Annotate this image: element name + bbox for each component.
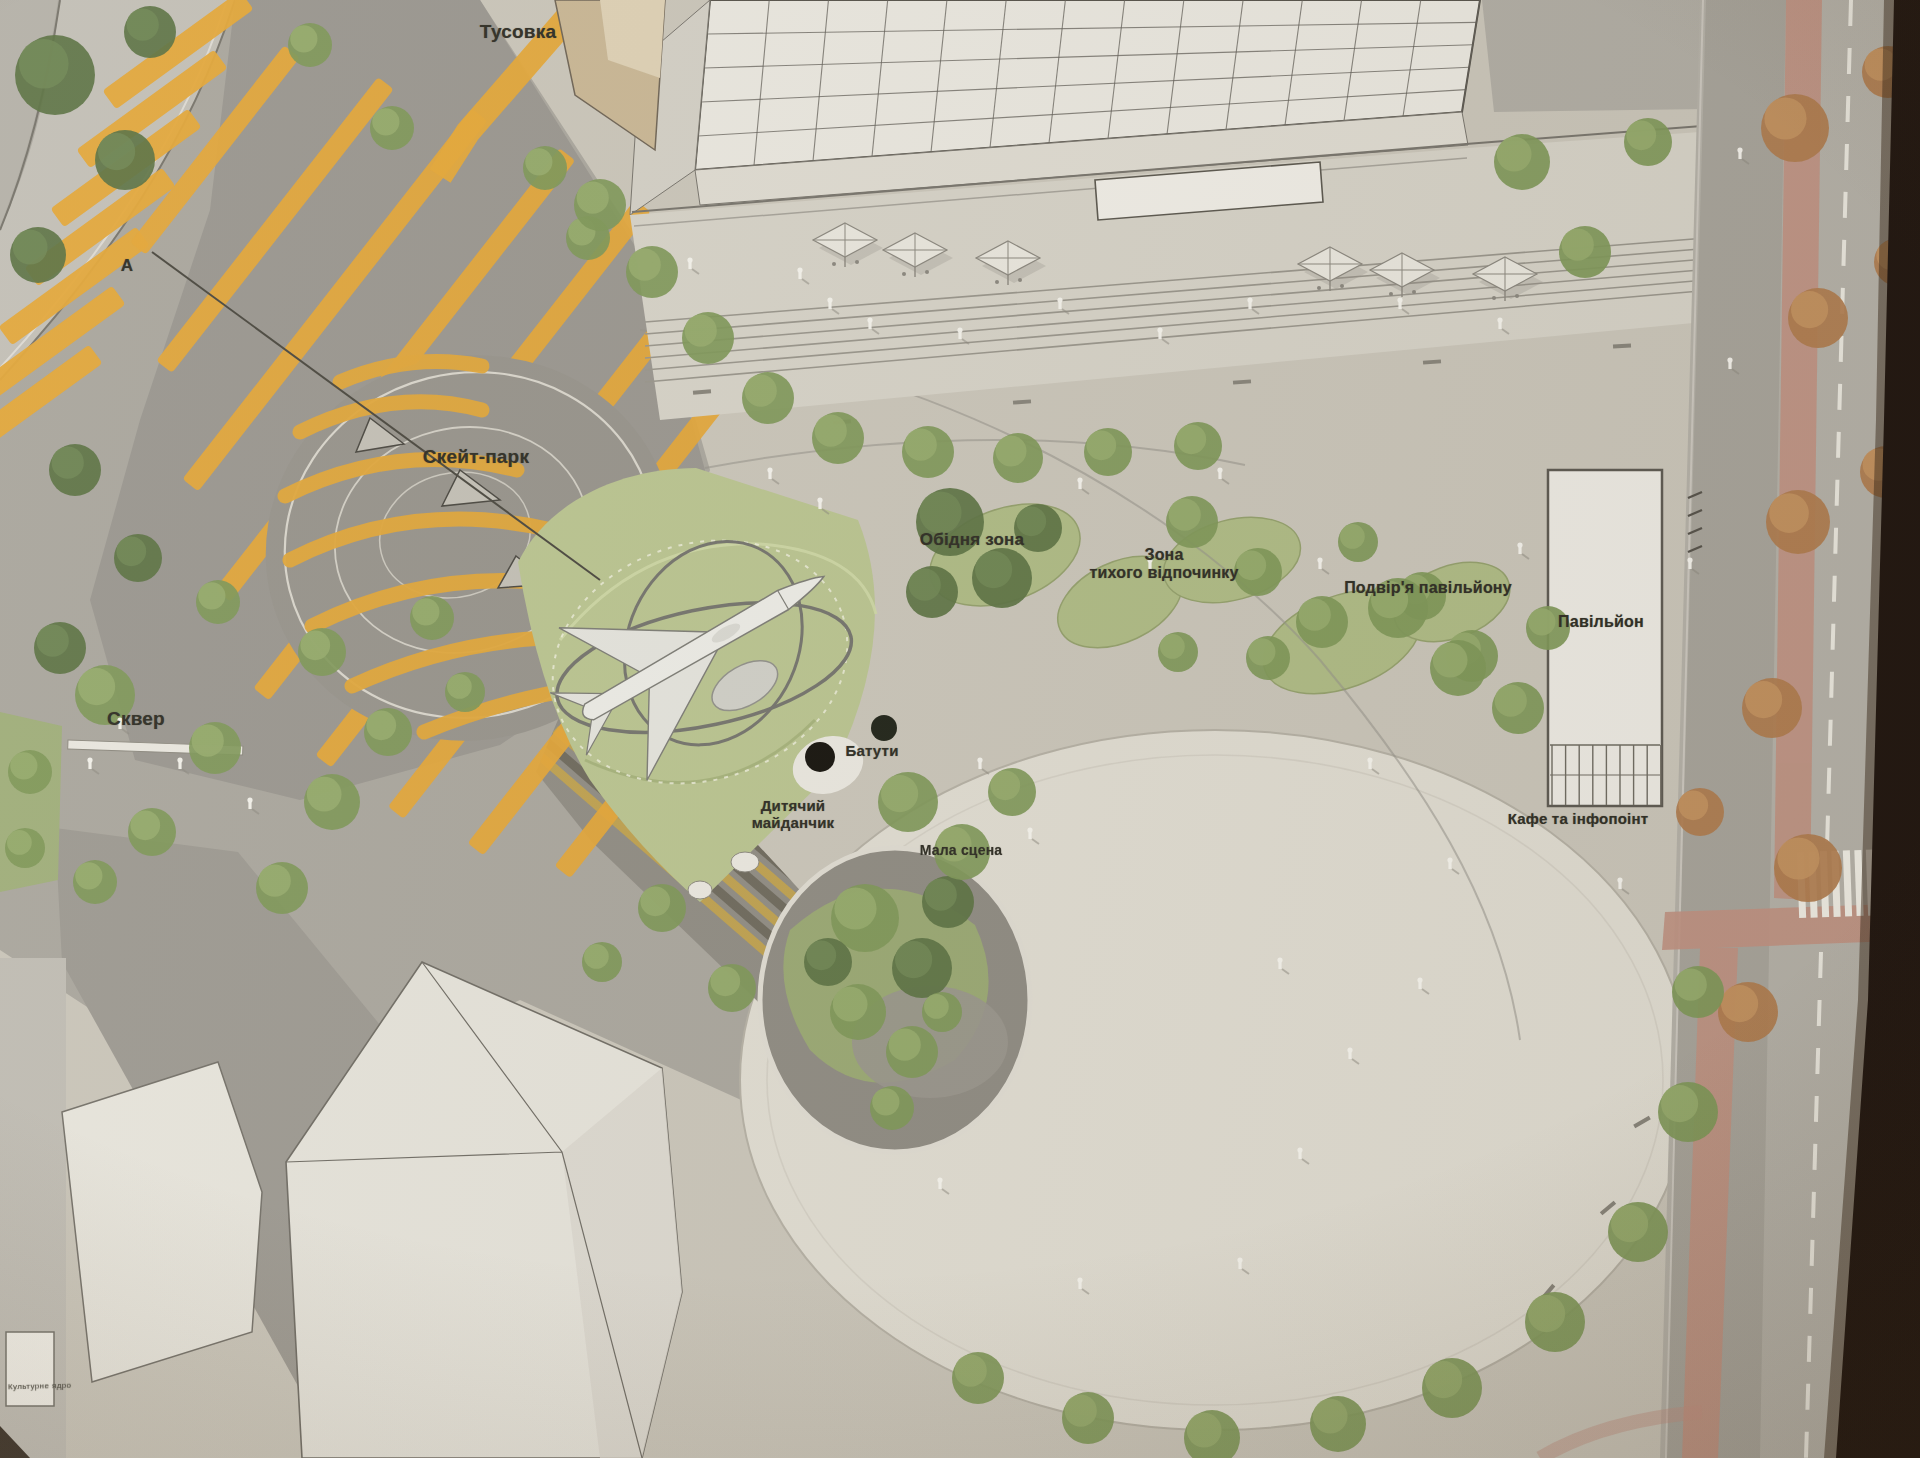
label-trampolines: Батути bbox=[845, 742, 898, 759]
label-pavilion-yard: Подвір'я павільйону bbox=[1344, 579, 1512, 597]
label-quiet-zone: Зона тихого відпочинку bbox=[1089, 546, 1238, 583]
label-quiet-zone-line1: Зона bbox=[1089, 546, 1238, 564]
site-plan-graphic bbox=[0, 0, 1920, 1458]
label-playground: Дитячий майданчик bbox=[752, 797, 835, 832]
label-playground-line1: Дитячий bbox=[752, 797, 835, 814]
label-playground-line2: майданчик bbox=[752, 814, 835, 831]
label-cafe-infopoint: Кафе та інфопоінт bbox=[1508, 810, 1649, 827]
label-tusovka: Тусовка bbox=[480, 21, 556, 43]
label-quiet-zone-line2: тихого відпочинку bbox=[1089, 564, 1238, 582]
label-lunch-zone: Обідня зона bbox=[920, 530, 1024, 550]
label-section-marker: А bbox=[121, 256, 133, 276]
label-skver: Сквер bbox=[107, 708, 165, 730]
label-pavilion: Павільйон bbox=[1558, 613, 1644, 631]
label-corner-caption: Культурне ядро bbox=[8, 1381, 72, 1392]
label-skatepark: Скейт-парк bbox=[423, 446, 529, 468]
small-kiosk bbox=[6, 1332, 54, 1406]
site-plan-photo: Тусовка Скейт-парк Сквер Обідня зона Зон… bbox=[0, 0, 1920, 1458]
label-small-stage: Мала сцена bbox=[920, 842, 1003, 858]
